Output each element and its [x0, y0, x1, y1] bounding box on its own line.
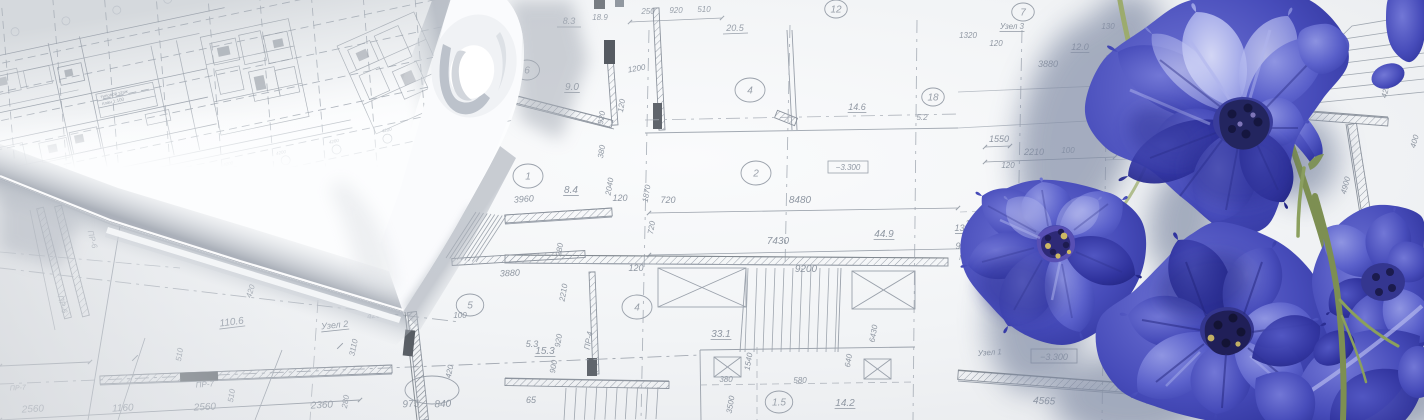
svg-text:14.6: 14.6 — [848, 102, 866, 112]
svg-text:1550: 1550 — [989, 134, 1009, 144]
svg-text:7430: 7430 — [767, 236, 790, 247]
svg-text:380: 380 — [719, 375, 733, 384]
svg-text:1.5: 1.5 — [772, 398, 786, 409]
svg-text:920: 920 — [669, 6, 683, 15]
svg-text:44.9: 44.9 — [874, 229, 894, 240]
svg-text:120: 120 — [1001, 161, 1015, 170]
svg-text:9200: 9200 — [795, 264, 818, 275]
svg-text:2: 2 — [752, 169, 759, 180]
svg-text:14.2: 14.2 — [835, 398, 855, 409]
svg-text:18: 18 — [927, 93, 939, 104]
svg-text:120: 120 — [989, 39, 1003, 48]
svg-text:Узел 3: Узел 3 — [999, 22, 1025, 31]
svg-text:7: 7 — [1020, 8, 1026, 19]
svg-text:580: 580 — [793, 376, 807, 385]
svg-text:20.5: 20.5 — [725, 23, 745, 33]
svg-text:18.9: 18.9 — [592, 13, 608, 22]
svg-text:510: 510 — [697, 5, 711, 14]
svg-text:4: 4 — [747, 86, 753, 97]
svg-text:−3.300: −3.300 — [836, 163, 861, 172]
svg-text:8480: 8480 — [789, 195, 812, 206]
svg-text:12: 12 — [830, 5, 842, 16]
svg-text:1320: 1320 — [959, 31, 977, 40]
